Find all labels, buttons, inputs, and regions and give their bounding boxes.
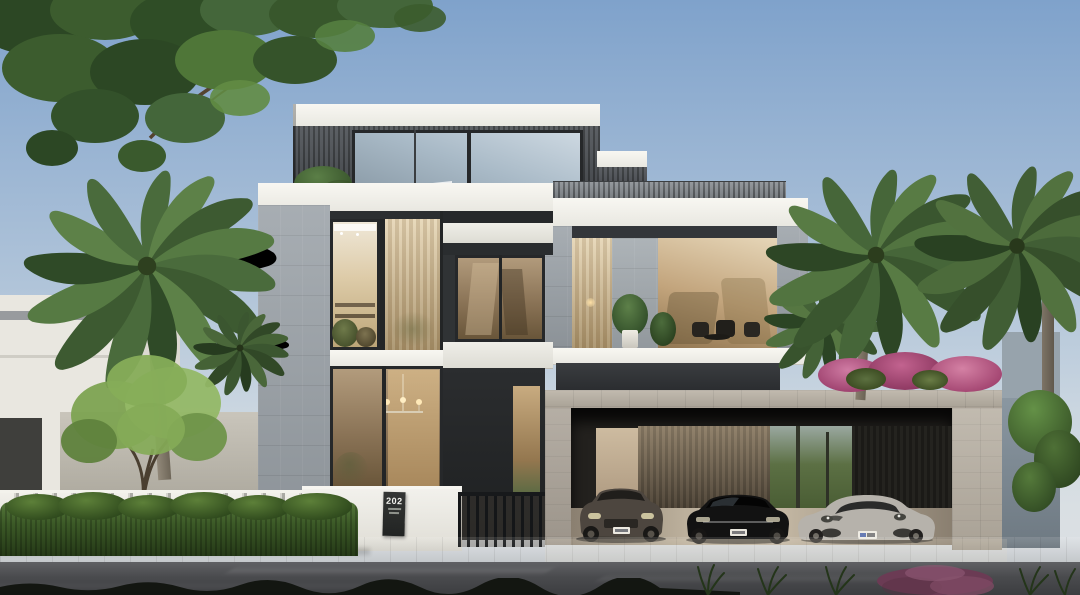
- interior-plant: [356, 327, 376, 347]
- road-reflection: [226, 568, 553, 573]
- left-wing-window-head: [330, 211, 443, 219]
- curtain-greenery-shadow: [391, 311, 435, 347]
- hedge-top: [282, 493, 352, 520]
- villa-exterior-scene: 202: [0, 0, 1080, 595]
- lobby-mullion: [382, 366, 386, 492]
- interior-downlight: [356, 233, 359, 236]
- left-wing-interior-glass: [330, 219, 380, 350]
- balcony-plant-2: [650, 312, 676, 346]
- left-wing-floor-band: [330, 350, 443, 367]
- plaque-text-line: [389, 512, 399, 514]
- interior-plant: [332, 319, 358, 347]
- right-wing-curtain-glass: [572, 238, 612, 350]
- bougainvillea-foliage: [846, 368, 886, 390]
- center-bay-reveal: [443, 255, 455, 342]
- pendant-light-glow: [586, 298, 595, 307]
- garage-dark-fascia: [556, 363, 780, 390]
- lobby-plant-reflection: [334, 452, 368, 488]
- left-wing-curtain-glass: [385, 219, 440, 350]
- palm-tree-far-right: [905, 140, 1080, 355]
- bougainvillea-foliage: [912, 370, 948, 390]
- neighbor-dark-recess: [0, 418, 42, 497]
- garage-apron-light: [545, 539, 1007, 562]
- garage-opening: [571, 408, 952, 545]
- penthouse-step-parapet: [597, 151, 647, 168]
- sheer-curtain: [572, 238, 612, 350]
- hedge-top: [228, 495, 290, 520]
- tree-left: [55, 345, 245, 505]
- center-bay-glass: [455, 255, 545, 342]
- center-bay-shadow: [443, 211, 553, 223]
- tree-right: [1012, 462, 1056, 512]
- garage-parapet: [545, 390, 1002, 409]
- interior-shelf: [335, 303, 375, 307]
- center-bay-fascia: [443, 223, 553, 244]
- center-bay-soffit: [443, 243, 553, 255]
- car-suv: [574, 480, 668, 544]
- interior-shelf: [335, 314, 375, 318]
- glass-reflection: [465, 263, 499, 335]
- entry-side-glass: [513, 386, 540, 492]
- interior-downlight: [340, 232, 343, 235]
- address-number: 202: [383, 496, 405, 507]
- center-bay-mullion: [499, 255, 502, 342]
- plant-pot: [622, 330, 638, 348]
- garage-pier-right: [952, 408, 1002, 550]
- entry-lobby-glass: [330, 366, 443, 492]
- plaque-text-line: [388, 508, 401, 510]
- balcony-table: [704, 334, 730, 340]
- street-plants-silhouette: [0, 578, 740, 595]
- address-plaque: 202: [382, 492, 405, 537]
- glass-tree-reflection: [500, 269, 528, 335]
- tree-canopy: [0, 0, 460, 188]
- center-bay-band: [443, 342, 553, 369]
- interior-ceiling: [334, 224, 376, 231]
- garage-pier-left: [545, 408, 571, 545]
- ornamental-grasses: [690, 563, 1080, 595]
